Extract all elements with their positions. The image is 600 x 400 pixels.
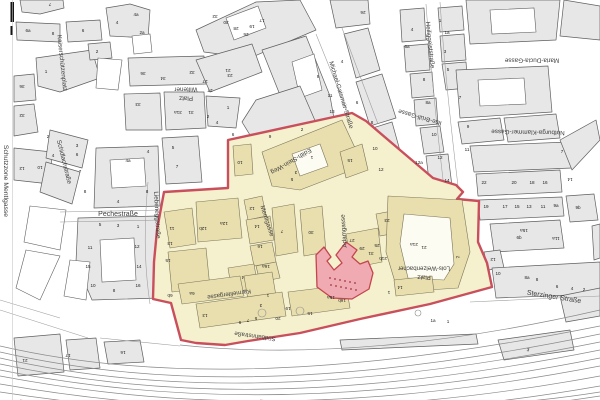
house-number: 7 [459,95,462,100]
house-number: 4 [117,199,120,204]
house-number: 11 [88,245,93,250]
house-number: 20 [511,180,517,185]
house-number: 2a [139,30,145,35]
house-number: 20 [275,316,281,321]
house-number: 30 [308,230,314,235]
house-number: 15 [514,204,520,209]
house-number: 27 [207,88,213,93]
house-number: 9 [269,134,272,139]
house-number: 11 [169,226,174,231]
house-number: 16 [120,350,126,355]
house-number: 12 [249,206,255,211]
house-number: 6b [167,293,173,298]
house-number: 12 [437,155,443,160]
house-number: 4a [133,12,139,17]
house-number: 3 [294,170,297,175]
house-number: 8 [52,31,55,36]
house-number: 12a [415,160,423,165]
house-number: 9 [317,74,320,79]
house-number: 19 [483,204,489,209]
house-number: 4 [116,20,119,25]
city-zone-map: 76a8644a2a2136323634323331a3127231245712… [0,0,600,400]
house-number: 1 [137,224,140,229]
house-number: 2 [583,287,586,292]
tree-icon [415,310,421,316]
house-number: 16a [262,264,270,269]
house-number: 21 [225,68,231,73]
house-number: 1 [439,18,442,23]
house-number: 8 [113,288,116,293]
house-number: 11 [541,204,546,209]
house-number: 2 [96,49,99,54]
house-number: 15 [347,158,353,163]
house-number: 5 [172,145,175,150]
house-number: 13 [329,109,335,114]
house-number: 14 [397,285,403,290]
house-number: 7 [48,2,51,7]
house-number: 15 [165,258,171,263]
house-number: 3 [259,303,262,308]
house-number: 17 [65,353,71,358]
house-number: 4 [411,27,414,32]
house-number: 31 [188,110,194,115]
house-number: 2 [207,114,210,119]
house-number: 14 [567,177,573,182]
house-number: 6b [516,235,522,240]
house-number: 5 [447,67,450,72]
house-number: 4 [241,275,244,280]
house-number: 7 [561,149,564,154]
house-number: 13 [202,313,208,318]
house-number: 6a [189,291,195,296]
street-label: Platz [417,273,431,280]
house-number: 6 [76,152,79,157]
house-number: 10 [37,165,43,170]
house-number: 12a [220,221,228,226]
house-number: 8a [524,275,530,280]
house-number: 11 [465,147,470,152]
house-number: 31 [368,251,374,256]
house-number: 13 [526,204,532,209]
house-number: 5 [99,222,102,227]
street-label: Notburga-Klammer-Gasse [491,128,565,136]
house-number: 6a [25,28,31,33]
street-label: Pechestraße [98,211,138,218]
house-number: 27 [349,238,355,243]
house-number: 8 [423,77,426,82]
house-number: 9 [467,124,470,129]
house-number: 10 [495,271,501,276]
street-label: Platz [179,94,193,101]
house-number: 13 [167,241,173,246]
house-number: 30 [223,20,229,25]
house-number: 4 [147,149,150,154]
house-number: 10 [372,146,378,151]
house-number: 36 [140,71,146,76]
house-number: 33 [135,102,141,107]
house-number: 12b [199,226,207,231]
house-number: 31a [174,110,182,115]
house-number: 2 [301,127,304,132]
house-number: 19 [249,24,255,29]
house-number: 15 [85,264,91,269]
house-number: 21a [410,242,418,247]
house-number: 28 [233,26,239,31]
house-number: 8 [371,120,374,125]
house-number: 10 [237,160,243,165]
house-number: 6a [404,44,410,49]
house-number: 9a [553,203,559,208]
house-number: 26 [243,32,249,37]
house-number: 17 [502,204,508,209]
street-label: Wiltener [174,85,197,92]
house-number: 9b [575,205,581,210]
street-label: Lois-Welzenbacher [398,264,450,271]
house-number: 21b [379,256,387,261]
house-number: 7 [280,229,283,234]
house-number: 2 [47,134,50,139]
house-number: 1a [430,318,436,323]
house-number: 17 [259,18,265,23]
house-number: 6 [356,100,359,105]
house-number: 32 [19,113,25,118]
house-number: 16b [338,298,346,303]
house-number: 15a [327,295,335,300]
house-number: 8 [84,189,87,194]
house-number: 7 [246,318,249,323]
house-number: 16 [542,180,548,185]
house-number: 1 [447,319,450,324]
house-number: 16 [135,283,141,288]
house-number: 1 [266,293,269,298]
street-label: Schutzzone Mentlgasse [2,145,9,217]
house-number: 14 [136,264,142,269]
house-number: 25 [374,243,380,248]
house-number: 12 [134,244,140,249]
house-number: 1 [227,105,230,110]
house-number: 5 [254,316,257,321]
house-number: 36 [19,84,25,89]
house-number: 11a [552,236,560,241]
house-number: 3 [76,143,79,148]
house-number: 16 [257,244,263,249]
house-number: 18 [529,180,535,185]
house-number: 10 [431,132,437,137]
house-number: 8 [146,189,149,194]
house-number: 11 [328,93,333,98]
house-number: 26 [360,10,366,15]
house-number: 32 [212,14,218,19]
house-number: 12 [378,167,384,172]
house-number: 27 [202,79,208,84]
house-number: 12 [19,166,25,171]
house-number: 7 [176,164,179,169]
house-number: 8a [425,100,431,105]
house-number: 1 [387,290,390,295]
house-number: 4 [571,286,574,291]
house-number: 15a [520,228,528,233]
house-number: 29 [359,246,365,251]
house-number: 3 [117,223,120,228]
house-number: 19 [285,306,291,311]
house-number: 1a [444,30,450,35]
house-number: 6 [82,28,85,33]
house-number: 6 [556,284,559,289]
map-canvas: 76a8644a2a2136323634323331a3127231245712… [0,0,600,400]
house-number: 7 [79,169,82,174]
house-number: 4 [52,153,55,158]
house-number: 4a [125,158,131,163]
house-number: 14 [254,224,260,229]
house-number: 4 [216,120,219,125]
house-number: 14 [444,178,450,183]
house-number: 1 [310,155,313,160]
house-number: 32 [189,70,195,75]
house-number: 22 [481,180,487,185]
street-label: Maria-Ducia-Gasse [504,56,559,63]
house-number: 5 [290,177,293,182]
house-number: 3 [444,49,447,54]
house-number: 23 [384,218,390,223]
house-number: 4 [341,59,344,64]
house-number: 34 [160,76,166,81]
house-number: 15 [307,311,313,316]
house-number: 10 [90,283,96,288]
house-number: 6 [232,132,235,137]
house-number: 21 [421,245,427,250]
house-number: 12 [490,257,496,262]
house-number: 21 [22,358,28,363]
house-number: 1 [45,69,48,74]
house-number: 8 [536,277,539,282]
house-number: 9 [238,320,241,325]
